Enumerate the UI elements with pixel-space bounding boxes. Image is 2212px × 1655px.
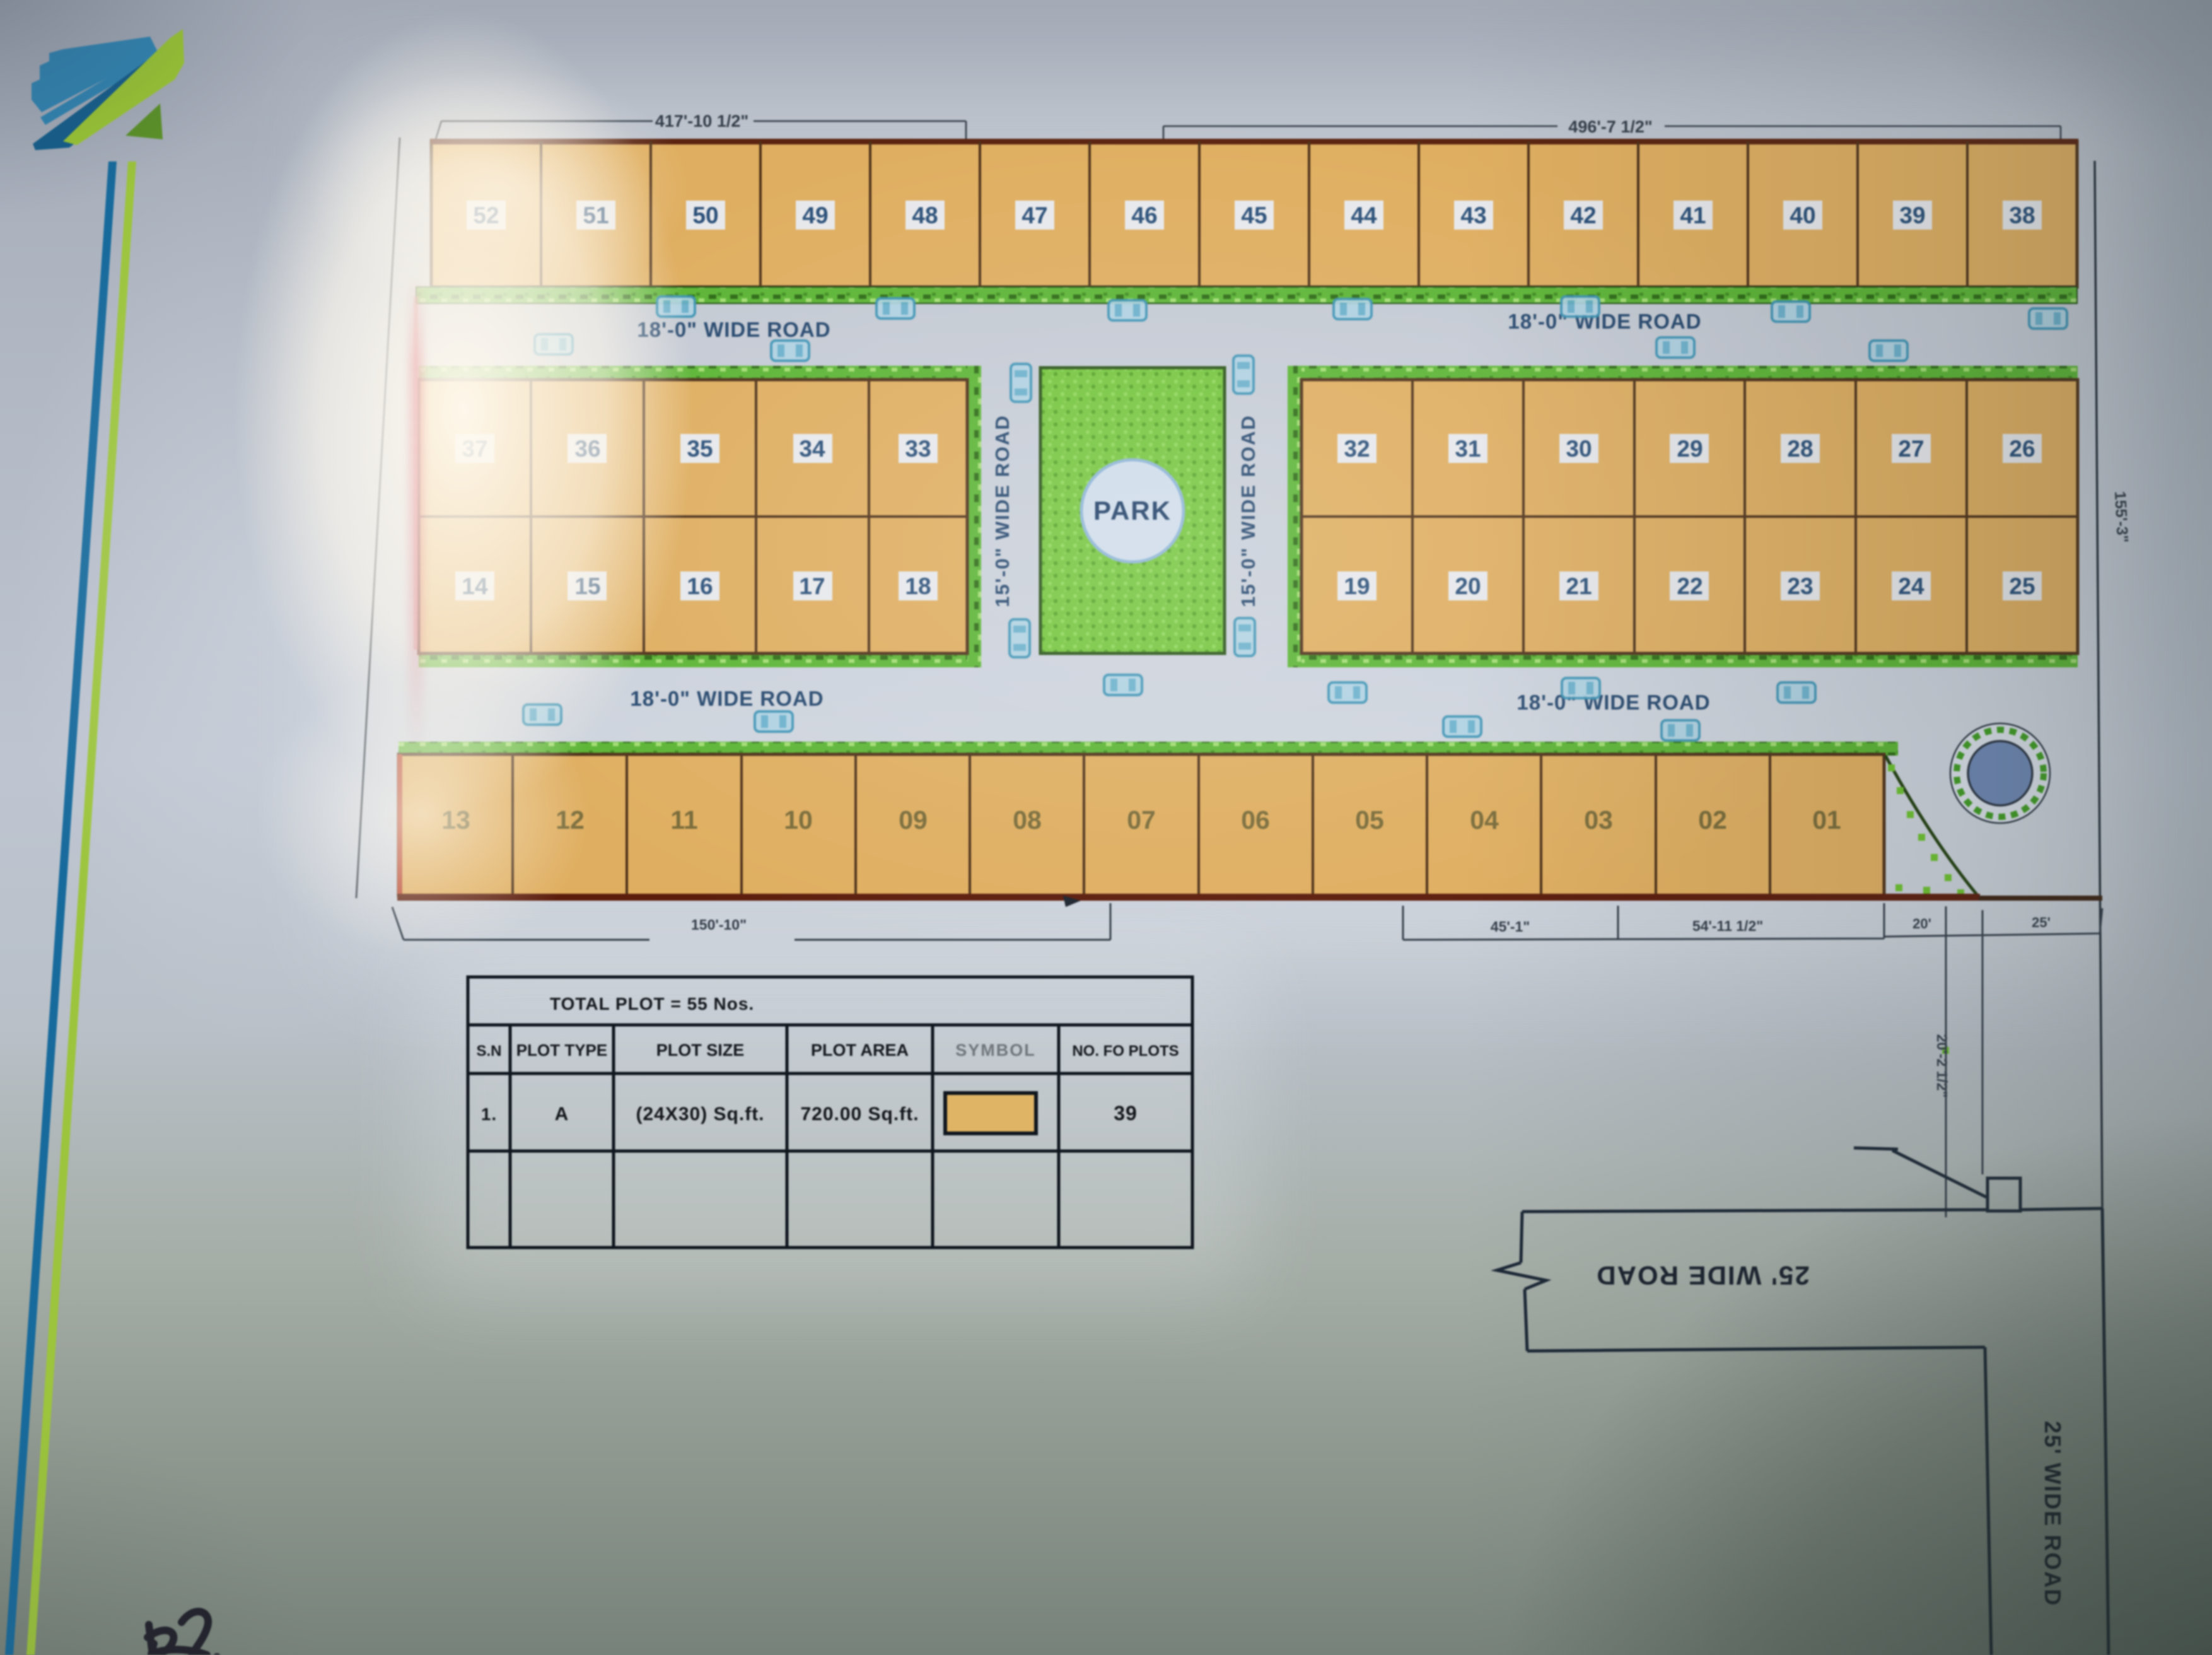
svg-text:40: 40 — [1790, 202, 1815, 228]
svg-text:18'-0" WIDE ROAD: 18'-0" WIDE ROAD — [1508, 310, 1701, 333]
svg-text:02: 02 — [1698, 805, 1727, 834]
svg-text:39: 39 — [1114, 1102, 1138, 1125]
svg-text:21: 21 — [1566, 573, 1592, 599]
svg-text:18: 18 — [905, 573, 931, 599]
svg-text:10: 10 — [784, 805, 813, 834]
svg-text:20'-2 1/2": 20'-2 1/2" — [1934, 1034, 1950, 1098]
svg-text:720.00 Sq.ft.: 720.00 Sq.ft. — [800, 1104, 919, 1125]
svg-text:49: 49 — [802, 202, 828, 228]
svg-text:14: 14 — [462, 573, 488, 599]
svg-text:25' WIDE ROAD: 25' WIDE ROAD — [2040, 1421, 2066, 1607]
svg-text:496'-7 1/2": 496'-7 1/2" — [1568, 117, 1652, 136]
svg-text:30: 30 — [1566, 436, 1592, 462]
svg-text:PLOT TYPE: PLOT TYPE — [516, 1041, 607, 1060]
svg-text:44: 44 — [1351, 202, 1377, 228]
svg-text:18'-0" WIDE ROAD: 18'-0" WIDE ROAD — [637, 318, 830, 341]
svg-text:45'-1": 45'-1" — [1491, 918, 1530, 935]
svg-text:03: 03 — [1584, 805, 1613, 834]
svg-text:45: 45 — [1241, 202, 1267, 228]
svg-text:15'-0" WIDE ROAD: 15'-0" WIDE ROAD — [991, 414, 1013, 607]
svg-text:34: 34 — [799, 436, 825, 462]
svg-text:11: 11 — [670, 805, 697, 834]
svg-text:48: 48 — [912, 202, 938, 228]
svg-text:22: 22 — [1677, 573, 1703, 599]
svg-text:32: 32 — [1344, 436, 1370, 462]
svg-text:06: 06 — [1241, 805, 1270, 834]
svg-text:19: 19 — [1344, 573, 1370, 599]
svg-text:39: 39 — [1899, 202, 1925, 228]
svg-text:35: 35 — [687, 436, 713, 462]
svg-text:SYMBOL: SYMBOL — [955, 1041, 1036, 1060]
svg-text:50: 50 — [692, 202, 718, 228]
svg-text:42: 42 — [1570, 202, 1596, 228]
svg-text:20: 20 — [1455, 573, 1481, 599]
svg-text:TOTAL PLOT = 55 Nos.: TOTAL PLOT = 55 Nos. — [550, 994, 754, 1014]
svg-text:52: 52 — [473, 202, 499, 228]
svg-text:05: 05 — [1355, 805, 1384, 834]
svg-text:24: 24 — [1898, 573, 1924, 599]
svg-text:25: 25 — [2009, 573, 2035, 599]
svg-text:47: 47 — [1022, 202, 1047, 228]
svg-text:37: 37 — [462, 436, 487, 462]
svg-text:07: 07 — [1127, 805, 1156, 834]
svg-text:(24X30) Sq.ft.: (24X30) Sq.ft. — [636, 1104, 764, 1125]
svg-text:NO. FO PLOTS: NO. FO PLOTS — [1072, 1043, 1179, 1060]
svg-text:15: 15 — [574, 573, 600, 599]
svg-text:09: 09 — [899, 805, 928, 834]
svg-text:08: 08 — [1013, 805, 1042, 834]
svg-text:20': 20' — [1912, 916, 1931, 932]
svg-text:36: 36 — [574, 436, 600, 462]
svg-text:25' WIDE ROAD: 25' WIDE ROAD — [1595, 1261, 1809, 1290]
svg-text:01: 01 — [1812, 805, 1841, 834]
svg-text:18'-0" WIDE ROAD: 18'-0" WIDE ROAD — [1516, 691, 1710, 714]
svg-text:13: 13 — [441, 805, 470, 834]
svg-text:18'-0" WIDE ROAD: 18'-0" WIDE ROAD — [630, 687, 824, 710]
svg-text:12: 12 — [556, 805, 585, 834]
svg-text:PLOT SIZE: PLOT SIZE — [656, 1041, 745, 1060]
svg-text:17: 17 — [799, 573, 825, 599]
svg-text:04: 04 — [1470, 805, 1499, 834]
svg-text:33: 33 — [905, 436, 931, 462]
svg-text:155'-3": 155'-3" — [2111, 491, 2131, 543]
svg-text:23: 23 — [1787, 573, 1813, 599]
svg-text:16: 16 — [687, 573, 713, 599]
svg-text:38: 38 — [2009, 202, 2035, 228]
svg-text:26: 26 — [2009, 436, 2035, 462]
svg-text:27: 27 — [1898, 436, 1924, 462]
svg-text:41: 41 — [1680, 202, 1706, 228]
svg-text:150'-10": 150'-10" — [691, 916, 747, 933]
svg-text:15'-0" WIDE ROAD: 15'-0" WIDE ROAD — [1237, 414, 1259, 607]
svg-text:PARK: PARK — [1093, 496, 1172, 525]
svg-text:PLOT AREA: PLOT AREA — [811, 1041, 909, 1060]
svg-text:29: 29 — [1677, 436, 1703, 462]
svg-text:28: 28 — [1787, 436, 1813, 462]
svg-text:43: 43 — [1460, 202, 1486, 228]
svg-text:54'-11 1/2": 54'-11 1/2" — [1692, 918, 1763, 934]
svg-text:1.: 1. — [481, 1104, 497, 1124]
svg-text:51: 51 — [583, 202, 608, 228]
svg-text:S.N: S.N — [476, 1043, 501, 1060]
svg-text:25': 25' — [2032, 915, 2051, 930]
svg-text:46: 46 — [1131, 202, 1157, 228]
svg-text:A: A — [555, 1104, 569, 1125]
svg-text:31: 31 — [1455, 436, 1481, 462]
svg-text:417'-10 1/2": 417'-10 1/2" — [655, 112, 748, 131]
